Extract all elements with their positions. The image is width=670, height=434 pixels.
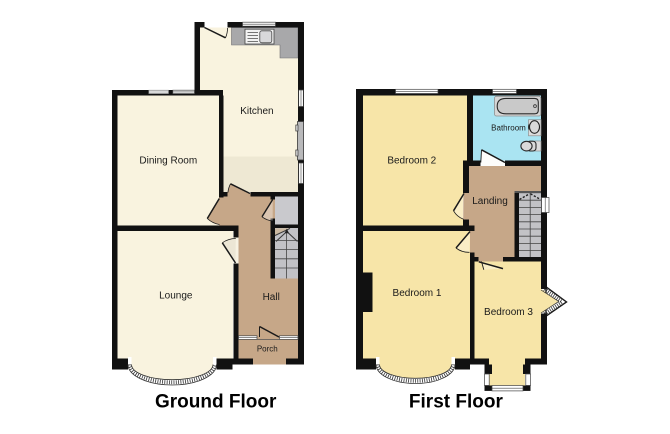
svg-text:Bathroom: Bathroom (491, 123, 526, 132)
svg-text:Hall: Hall (263, 292, 280, 303)
svg-text:Porch: Porch (257, 345, 278, 354)
svg-text:Ground Floor: Ground Floor (155, 392, 277, 413)
svg-text:Bedroom 3: Bedroom 3 (484, 307, 533, 318)
svg-text:Lounge: Lounge (159, 291, 193, 302)
svg-text:First Floor: First Floor (409, 392, 504, 413)
svg-text:Bedroom 2: Bedroom 2 (387, 155, 436, 166)
svg-text:Dining Room: Dining Room (139, 155, 197, 166)
svg-text:Landing: Landing (472, 196, 508, 207)
svg-text:Bedroom 1: Bedroom 1 (393, 288, 442, 299)
svg-text:Kitchen: Kitchen (240, 106, 273, 117)
